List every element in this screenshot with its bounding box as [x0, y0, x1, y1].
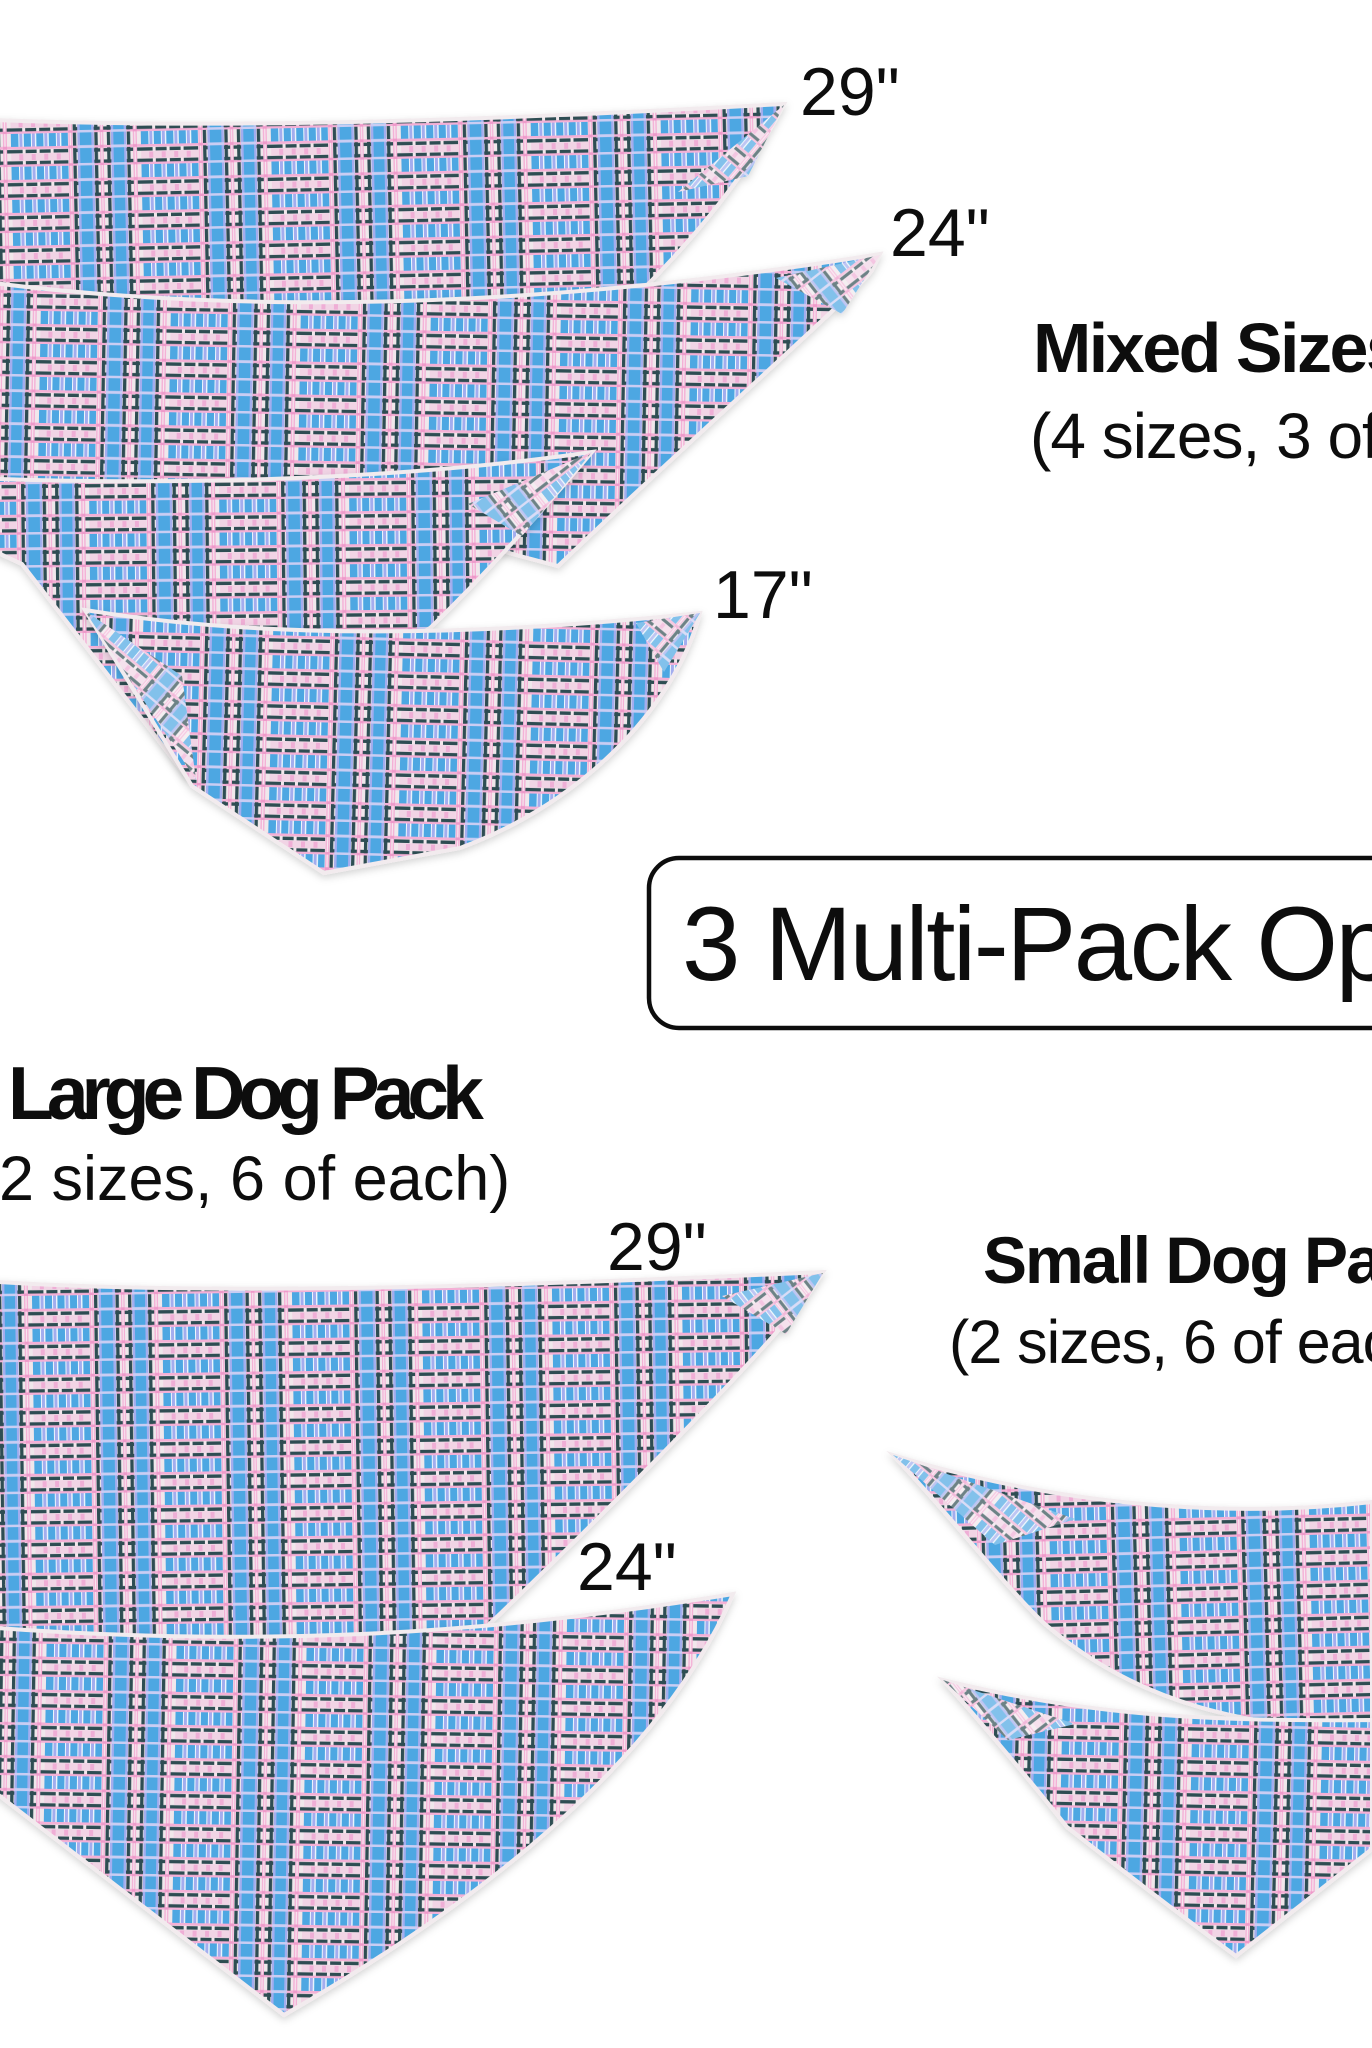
svg-text:(2 sizes, 6 of each): (2 sizes, 6 of each)	[949, 1308, 1372, 1376]
svg-text:17": 17"	[713, 557, 813, 633]
svg-text:Mixed Sizes Pack: Mixed Sizes Pack	[1033, 309, 1372, 387]
svg-text:(4 sizes, 3 of each): (4 sizes, 3 of each)	[1030, 400, 1372, 472]
svg-text:29": 29"	[607, 1209, 707, 1285]
svg-text:Large Dog Pack: Large Dog Pack	[8, 1051, 484, 1135]
svg-text:29": 29"	[800, 54, 900, 130]
svg-text:Small Dog Pack: Small Dog Pack	[983, 1223, 1372, 1297]
svg-text:24": 24"	[890, 195, 990, 271]
svg-text:(2 sizes, 6 of each): (2 sizes, 6 of each)	[0, 1144, 510, 1214]
svg-text:3 Multi-Pack Options: 3 Multi-Pack Options	[682, 886, 1372, 1003]
svg-text:24": 24"	[577, 1529, 677, 1605]
